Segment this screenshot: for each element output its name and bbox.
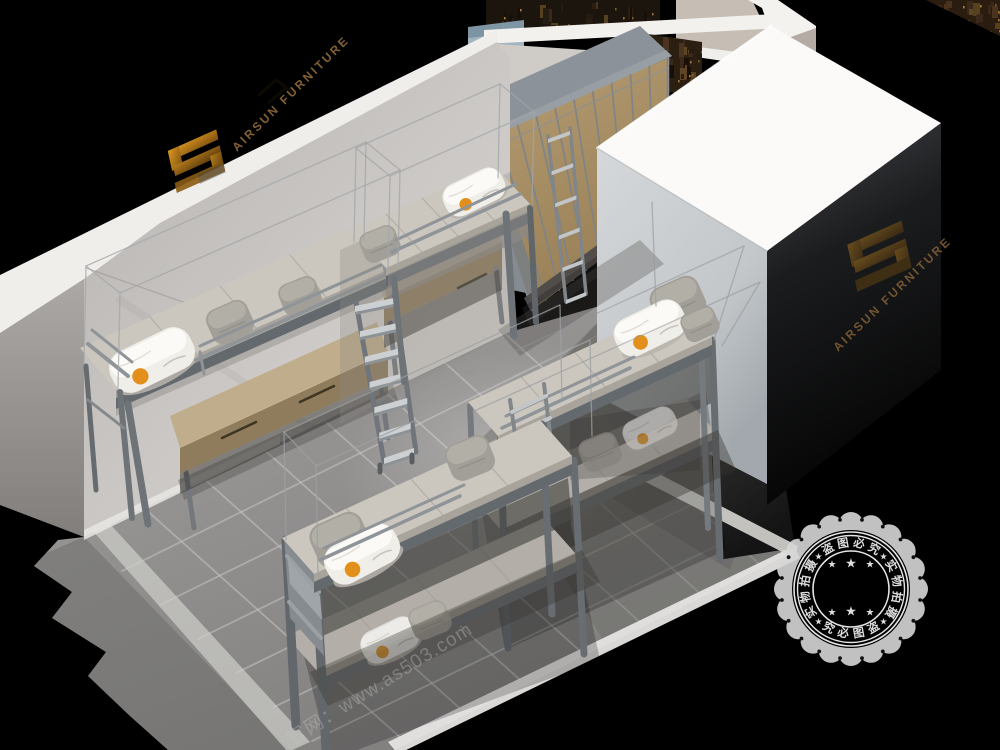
- svg-text:★: ★: [828, 560, 837, 571]
- svg-text:★: ★: [845, 604, 857, 619]
- svg-text:★: ★: [866, 560, 875, 571]
- svg-text:★: ★: [828, 608, 837, 619]
- svg-text:★: ★: [845, 556, 857, 571]
- svg-text:★: ★: [814, 552, 822, 562]
- svg-text:★: ★: [814, 617, 822, 627]
- svg-text:★: ★: [879, 617, 887, 627]
- svg-text:★: ★: [866, 608, 875, 619]
- svg-text:★: ★: [879, 552, 887, 562]
